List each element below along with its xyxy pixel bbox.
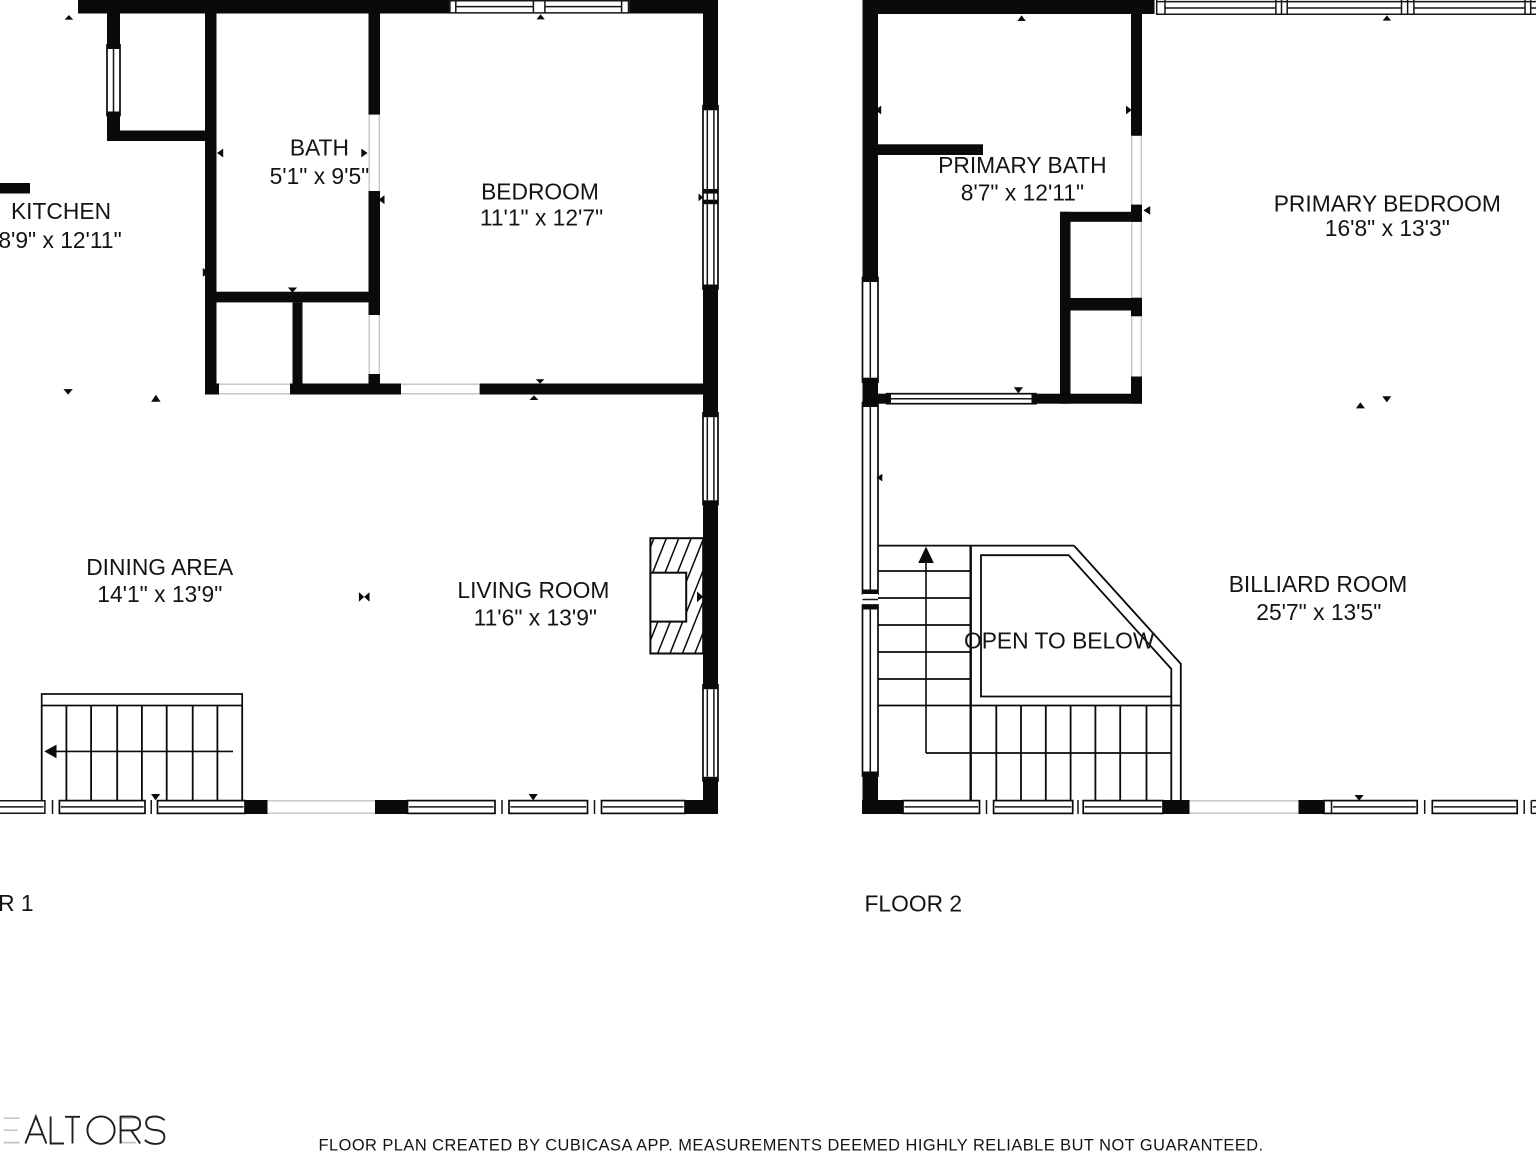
svg-text:PRIMARY BEDROOM: PRIMARY BEDROOM <box>1274 190 1501 216</box>
svg-text:LIVING ROOM: LIVING ROOM <box>457 577 609 603</box>
svg-text:8'7" x 12'11": 8'7" x 12'11" <box>961 179 1084 205</box>
svg-text:FLOOR 2: FLOOR 2 <box>865 891 963 917</box>
svg-text:5'1" x 9'5": 5'1" x 9'5" <box>270 163 370 189</box>
svg-text:BILLIARD ROOM: BILLIARD ROOM <box>1229 571 1408 597</box>
svg-text:OPEN TO BELOW: OPEN TO BELOW <box>964 628 1155 654</box>
svg-text:11'1" x 12'7": 11'1" x 12'7" <box>480 205 603 231</box>
svg-text:BATH: BATH <box>290 135 349 161</box>
svg-text:16'8" x 13'3": 16'8" x 13'3" <box>1325 215 1450 241</box>
svg-text:FLOOR 1: FLOOR 1 <box>0 890 34 916</box>
svg-text:8'9" x 12'11": 8'9" x 12'11" <box>0 227 122 253</box>
svg-text:FLOOR PLAN CREATED BY CUBICASA: FLOOR PLAN CREATED BY CUBICASA APP. MEAS… <box>319 1137 1264 1152</box>
svg-text:14'1" x 13'9": 14'1" x 13'9" <box>97 581 222 607</box>
svg-text:KITCHEN: KITCHEN <box>11 198 111 224</box>
svg-text:DINING AREA: DINING AREA <box>86 554 234 580</box>
svg-text:25'7" x 13'5": 25'7" x 13'5" <box>1256 599 1381 625</box>
svg-text:PRIMARY BATH: PRIMARY BATH <box>938 152 1106 178</box>
svg-text:BEDROOM: BEDROOM <box>481 179 599 205</box>
svg-text:11'6" x 13'9": 11'6" x 13'9" <box>474 604 597 630</box>
